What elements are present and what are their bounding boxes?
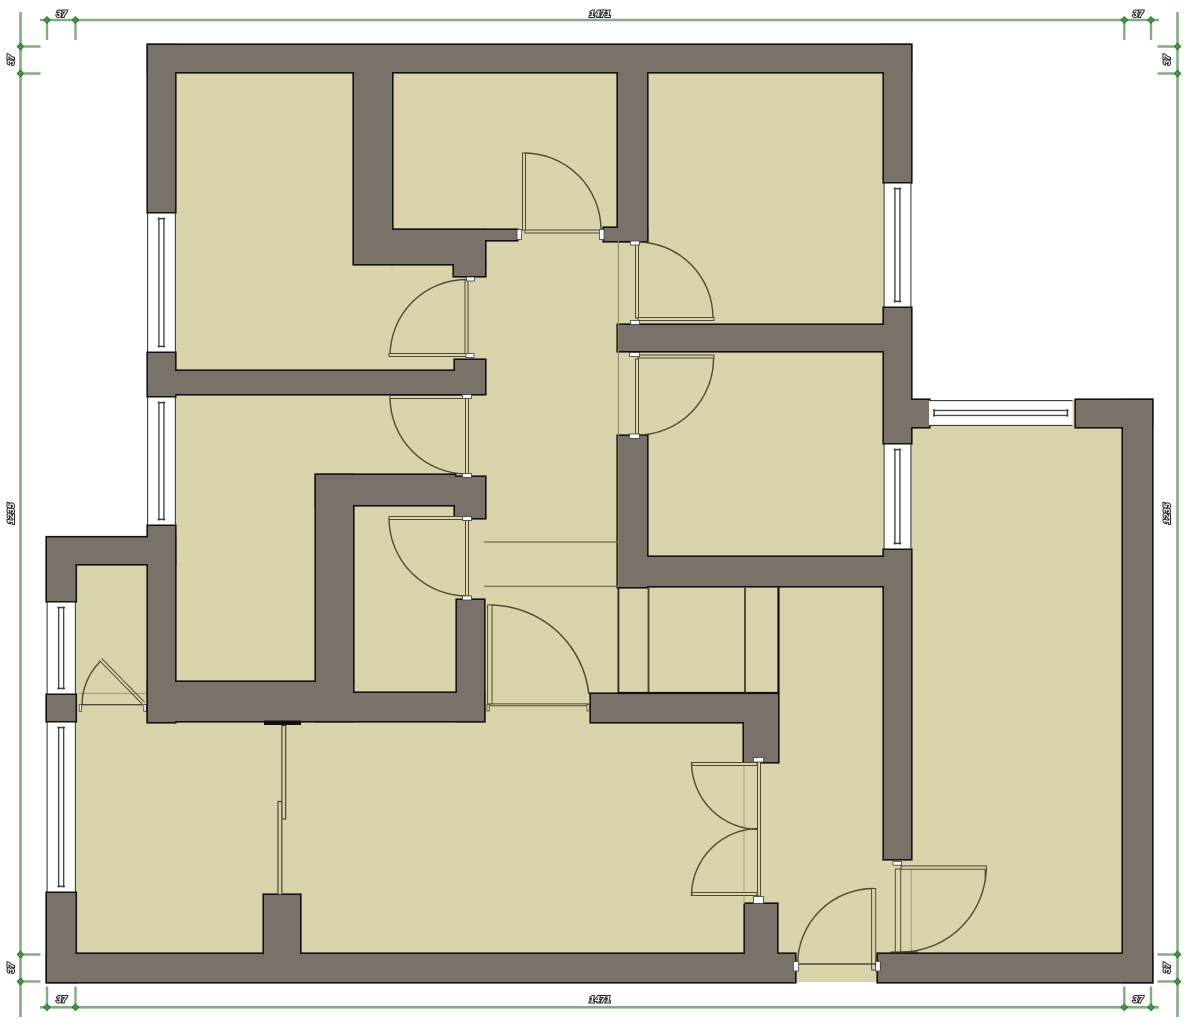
- svg-text:1471: 1471: [589, 9, 610, 20]
- svg-text:1235: 1235: [1162, 502, 1173, 524]
- svg-text:1471: 1471: [589, 995, 610, 1006]
- svg-text:37: 37: [6, 962, 17, 973]
- svg-text:37: 37: [1162, 962, 1173, 973]
- svg-text:37: 37: [56, 995, 67, 1006]
- svg-text:37: 37: [1162, 54, 1173, 65]
- svg-text:1235: 1235: [6, 502, 17, 524]
- svg-text:37: 37: [1133, 995, 1144, 1006]
- svg-text:37: 37: [6, 54, 17, 65]
- svg-text:37: 37: [56, 9, 67, 20]
- svg-text:37: 37: [1133, 9, 1144, 20]
